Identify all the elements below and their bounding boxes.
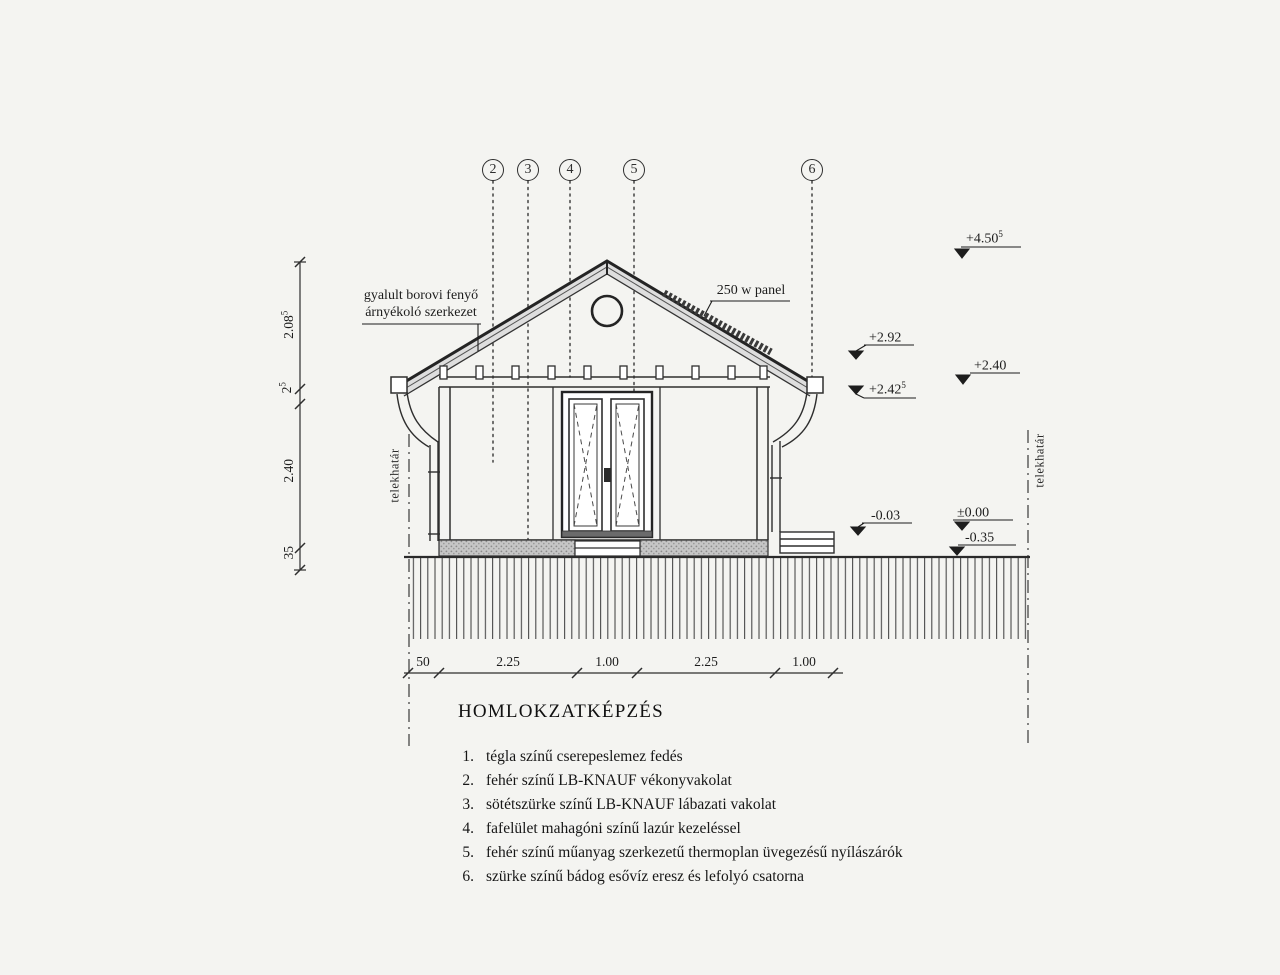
solar-panel — [664, 293, 771, 352]
gable-vent — [592, 296, 622, 326]
elevation-floor-zero: ±0.00 — [957, 503, 989, 522]
facade-drawing-page: { "title": "HOMLOKZATKÉPZÉS", "markers":… — [0, 0, 1280, 975]
dim-bottom-1: 50 — [393, 654, 453, 670]
elevation-peak: +4.505 — [966, 229, 1003, 248]
plinth — [439, 540, 768, 556]
section-marker-4-label: 4 — [567, 162, 574, 178]
dim-bottom-2: 2.25 — [478, 654, 538, 670]
ground-line-and-hatch — [404, 557, 1030, 639]
legend-item-1: 1.tégla színű cserepeslemez fedés — [450, 748, 903, 772]
dim-left-1: 2.085 — [279, 301, 297, 349]
boundary-label-right: telekhatár — [1033, 424, 1048, 498]
shading-label-line2: árnyékoló szerkezet — [341, 304, 501, 321]
section-marker-3: 3 — [517, 159, 539, 181]
legend-item-6: 6.szürke színű bádog esővíz eresz és lef… — [450, 868, 903, 892]
section-marker-5-label: 5 — [631, 162, 638, 178]
dim-bottom-4: 2.25 — [676, 654, 736, 670]
section-marker-6: 6 — [801, 159, 823, 181]
section-marker-2: 2 — [482, 159, 504, 181]
elevation-ridge-beam: +2.92 — [869, 328, 901, 347]
dim-left-3: 2.40 — [279, 447, 297, 495]
drawing-title: HOMLOKZATKÉPZÉS — [458, 701, 664, 723]
door-sill — [562, 531, 652, 537]
legend-item-4: 4.fafelület mahagóni színű lazúr kezelés… — [450, 820, 903, 844]
panel-label-text: 250 w panel — [717, 283, 785, 298]
panel-label: 250 w panel — [710, 282, 792, 299]
dim-left-2: 25 — [277, 364, 295, 412]
elevation-eave: +2.40 — [974, 356, 1006, 375]
elevation-foundation: -0.35 — [965, 528, 994, 547]
gutter-right — [807, 377, 823, 393]
shading-structure-label: gyalult borovi fenyő árnyékoló szerkezet — [341, 287, 501, 321]
dim-left-4: 35 — [279, 529, 297, 577]
legend-item-5: 5.fehér színű műanyag szerkezetű thermop… — [450, 844, 903, 868]
entrance-door — [553, 387, 660, 540]
section-marker-2-label: 2 — [490, 162, 497, 178]
section-marker-6-label: 6 — [809, 162, 816, 178]
elevation-terrain: -0.03 — [871, 506, 900, 525]
boundary-label-left: telekhatár — [388, 439, 403, 513]
section-marker-3-label: 3 — [525, 162, 532, 178]
gutter-left — [391, 377, 407, 393]
dim-bottom-3: 1.00 — [577, 654, 637, 670]
eave-beam — [439, 366, 770, 387]
dim-bottom-5: 1.00 — [774, 654, 834, 670]
section-marker-5: 5 — [623, 159, 645, 181]
legend-item-3: 3.sötétszürke színű LB-KNAUF lábazati va… — [450, 796, 903, 820]
material-legend: 1.tégla színű cserepeslemez fedés 2.fehé… — [450, 748, 903, 892]
shading-label-line1: gyalult borovi fenyő — [341, 287, 501, 304]
legend-item-2: 2.fehér színű LB-KNAUF vékonyvakolat — [450, 772, 903, 796]
side-steps — [780, 532, 834, 553]
section-marker-4: 4 — [559, 159, 581, 181]
elevation-wall-top: +2.425 — [869, 380, 906, 399]
door-handle — [604, 468, 611, 482]
